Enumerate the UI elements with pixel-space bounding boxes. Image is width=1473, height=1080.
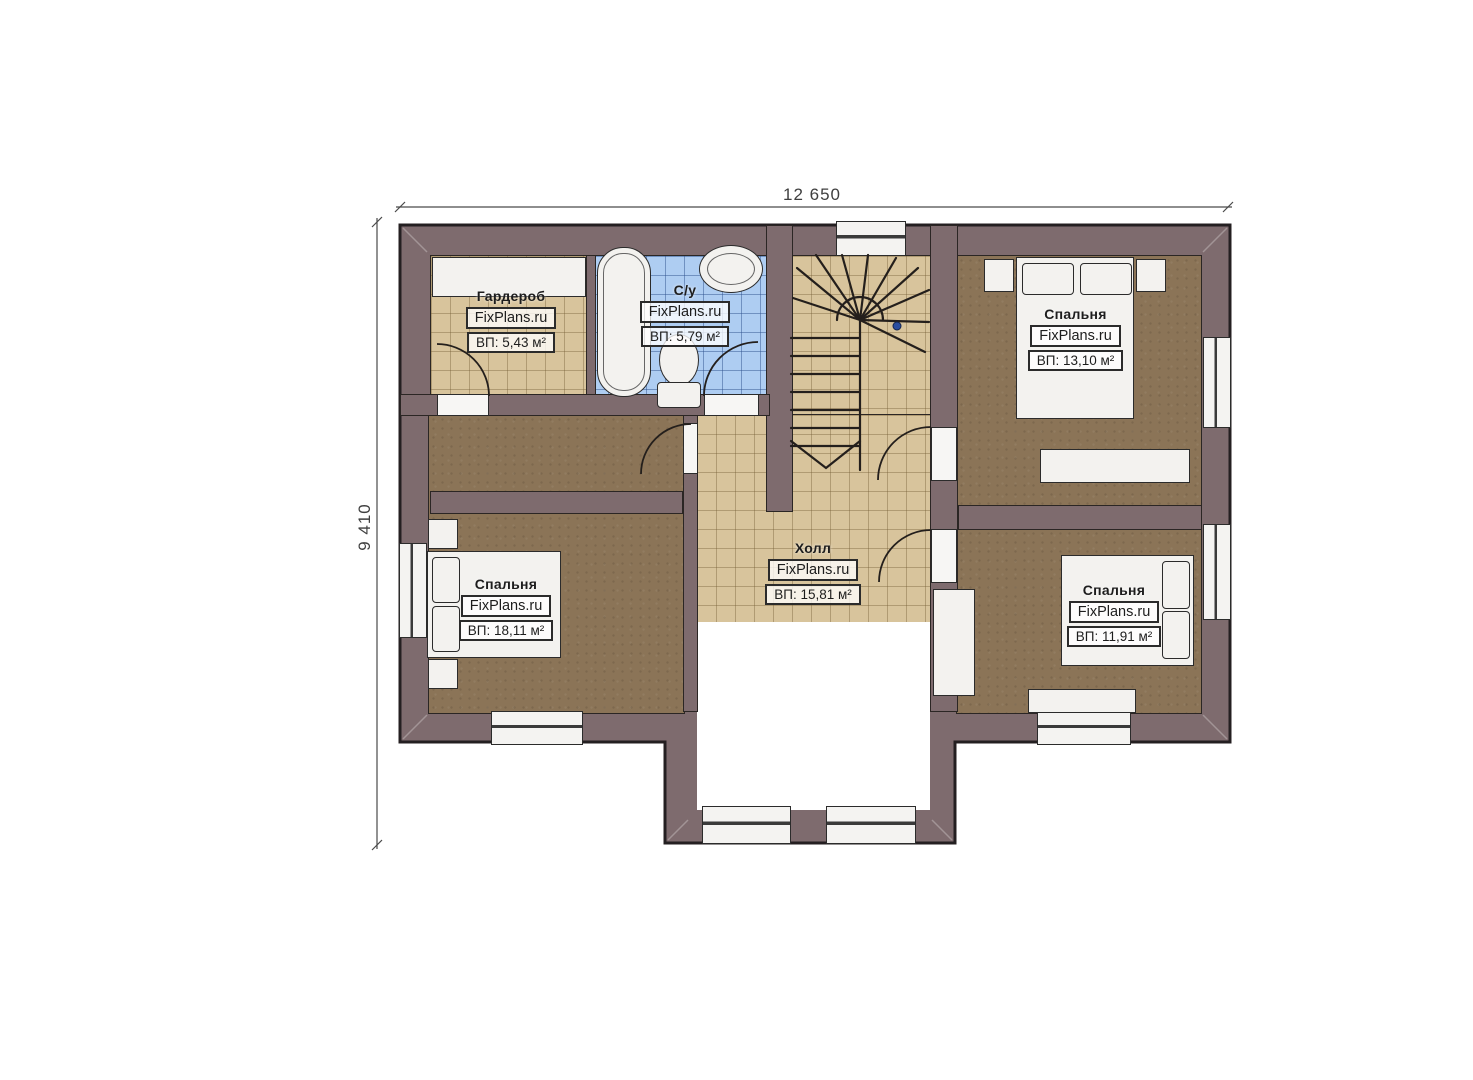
room-label-bedroom-left: Спальня FixPlans.ru ВП: 18,11 м² bbox=[450, 576, 562, 641]
window-bottom-bedroom-right bbox=[1037, 711, 1131, 745]
room-area: ВП: 11,91 м² bbox=[1067, 626, 1162, 647]
door-bedroom-left bbox=[683, 423, 698, 474]
room-area: ВП: 13,10 м² bbox=[1028, 350, 1124, 371]
nightstand bbox=[428, 659, 458, 689]
brand-watermark: FixPlans.ru bbox=[466, 307, 557, 329]
room-area: ВП: 18,11 м² bbox=[459, 620, 554, 641]
floor-plan-page: 12 650 9 410 Гардероб FixPlans.ru ВП: 5,… bbox=[0, 0, 1473, 1080]
dimension-width-label: 12 650 bbox=[762, 185, 862, 205]
toilet-tank bbox=[657, 382, 701, 408]
window-bay-right bbox=[826, 806, 916, 844]
room-name: Спальня bbox=[1044, 306, 1107, 322]
room-area: ВП: 15,81 м² bbox=[765, 584, 861, 605]
wardrobe-cabinet bbox=[933, 589, 975, 696]
room-area: ВП: 5,79 м² bbox=[641, 326, 729, 347]
room-label-bathroom: С/у FixPlans.ru ВП: 5,79 м² bbox=[636, 282, 734, 347]
wall-wardrobe-bath bbox=[586, 255, 596, 398]
window-top-stair bbox=[836, 221, 906, 256]
brand-watermark: FixPlans.ru bbox=[640, 301, 731, 323]
window-left-bedroom-left bbox=[399, 543, 427, 638]
room-name: Спальня bbox=[475, 576, 538, 592]
wall-bath-stair bbox=[766, 225, 793, 512]
room-name: Спальня bbox=[1083, 582, 1146, 598]
room-label-hall: Холл FixPlans.ru ВП: 15,81 м² bbox=[760, 540, 866, 605]
brand-watermark: FixPlans.ru bbox=[1030, 325, 1121, 347]
open-void bbox=[697, 622, 930, 810]
brand-watermark: FixPlans.ru bbox=[461, 595, 552, 617]
knee-wall-bedroom-left bbox=[430, 491, 683, 514]
pillow bbox=[1080, 263, 1132, 295]
window-bottom-bedroom-left bbox=[491, 711, 583, 745]
pillow bbox=[1022, 263, 1074, 295]
brand-watermark: FixPlans.ru bbox=[1069, 601, 1160, 623]
dimension-height-label: 9 410 bbox=[355, 492, 375, 562]
door-bedroom-top-right bbox=[931, 427, 957, 481]
room-label-bedroom-bottom-right: Спальня FixPlans.ru ВП: 11,91 м² bbox=[1058, 582, 1170, 647]
window-bay-left bbox=[702, 806, 791, 844]
room-label-wardrobe: Гардероб FixPlans.ru ВП: 5,43 м² bbox=[452, 288, 570, 353]
nightstand bbox=[984, 259, 1014, 292]
door-bedroom-bottom-right bbox=[931, 529, 957, 583]
brand-watermark: FixPlans.ru bbox=[768, 559, 859, 581]
window-right-bedroom-bottom bbox=[1203, 524, 1231, 620]
dresser bbox=[1028, 689, 1136, 713]
dresser bbox=[1040, 449, 1190, 483]
window-right-bedroom-top bbox=[1203, 337, 1231, 428]
nightstand bbox=[428, 519, 458, 549]
room-name: Холл bbox=[795, 540, 831, 556]
room-label-bedroom-top-right: Спальня FixPlans.ru ВП: 13,10 м² bbox=[1018, 306, 1133, 371]
room-name: Гардероб bbox=[477, 288, 546, 304]
door-wardrobe bbox=[437, 394, 489, 416]
nightstand bbox=[1136, 259, 1166, 292]
wall-between-right-bedrooms bbox=[958, 505, 1202, 530]
room-area: ВП: 5,43 м² bbox=[467, 332, 555, 353]
door-bathroom bbox=[704, 394, 759, 416]
room-name: С/у bbox=[674, 282, 697, 298]
